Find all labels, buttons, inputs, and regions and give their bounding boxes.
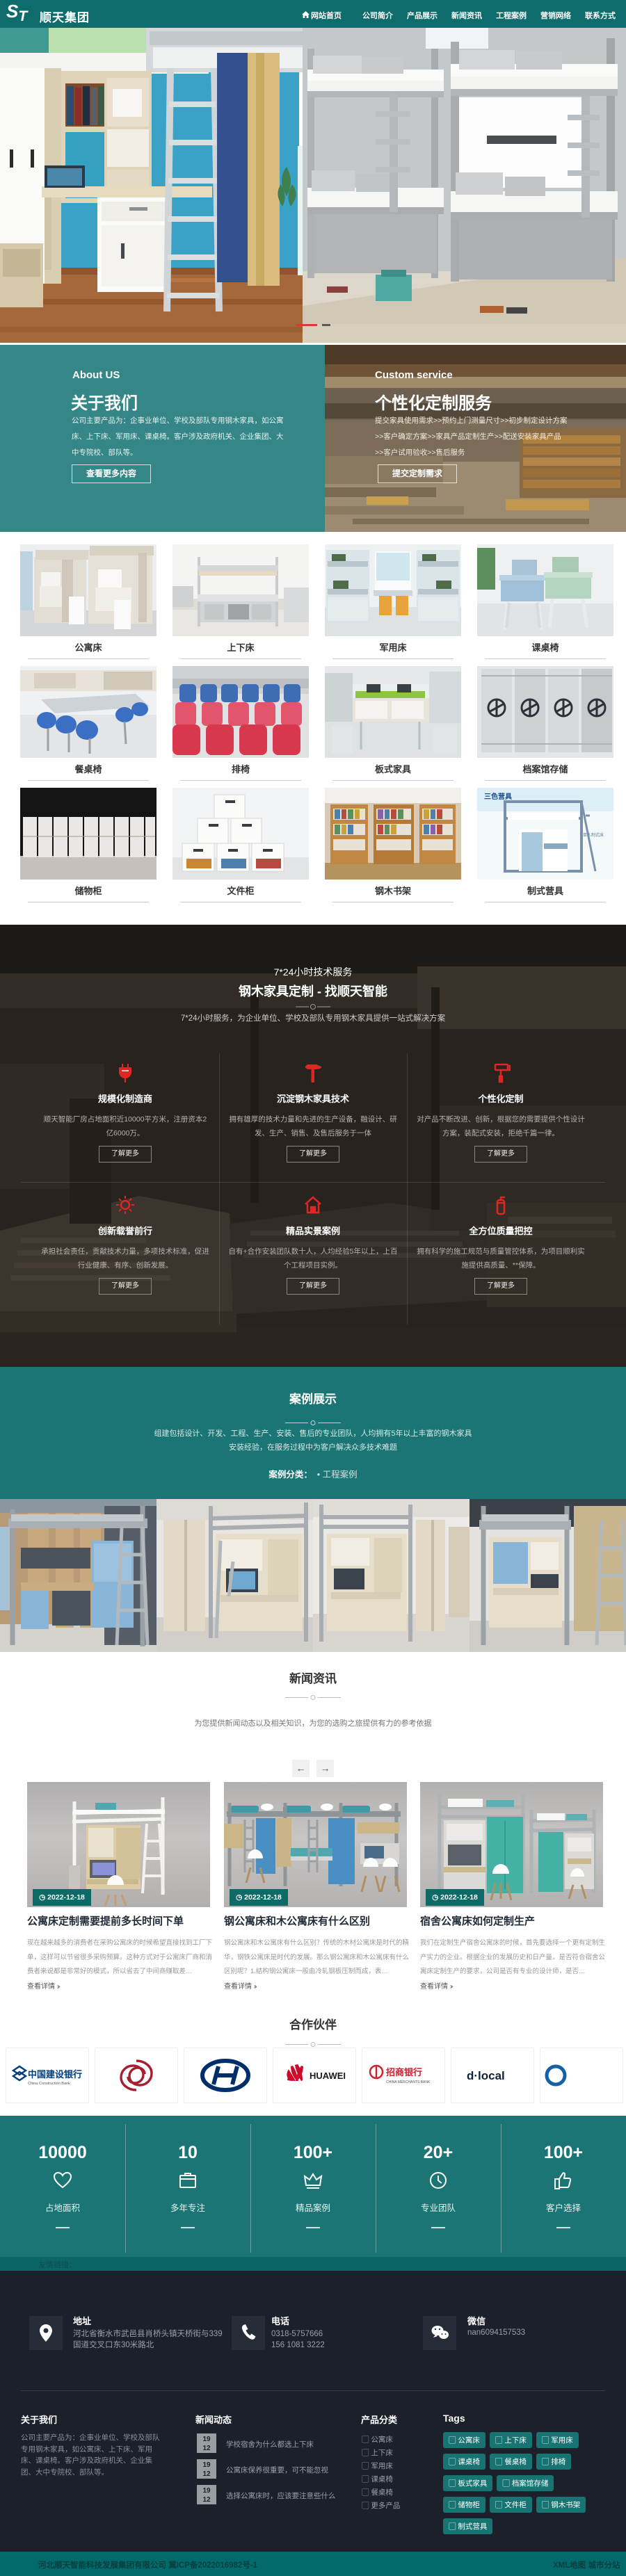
svg-text:中国建设银行: 中国建设银行 (28, 2069, 82, 2080)
svg-text:单人制式床: 单人制式床 (583, 832, 604, 838)
svg-text:招商银行: 招商银行 (386, 2067, 422, 2077)
svg-text:d·local: d·local (467, 2069, 505, 2082)
svg-text:China Construction Bank: China Construction Bank (28, 2082, 70, 2086)
svg-text:CHINA MERCHANTS BANK: CHINA MERCHANTS BANK (386, 2080, 431, 2084)
svg-text:三色营具: 三色营具 (484, 792, 512, 801)
svg-text:HUAWEI: HUAWEI (310, 2071, 346, 2081)
